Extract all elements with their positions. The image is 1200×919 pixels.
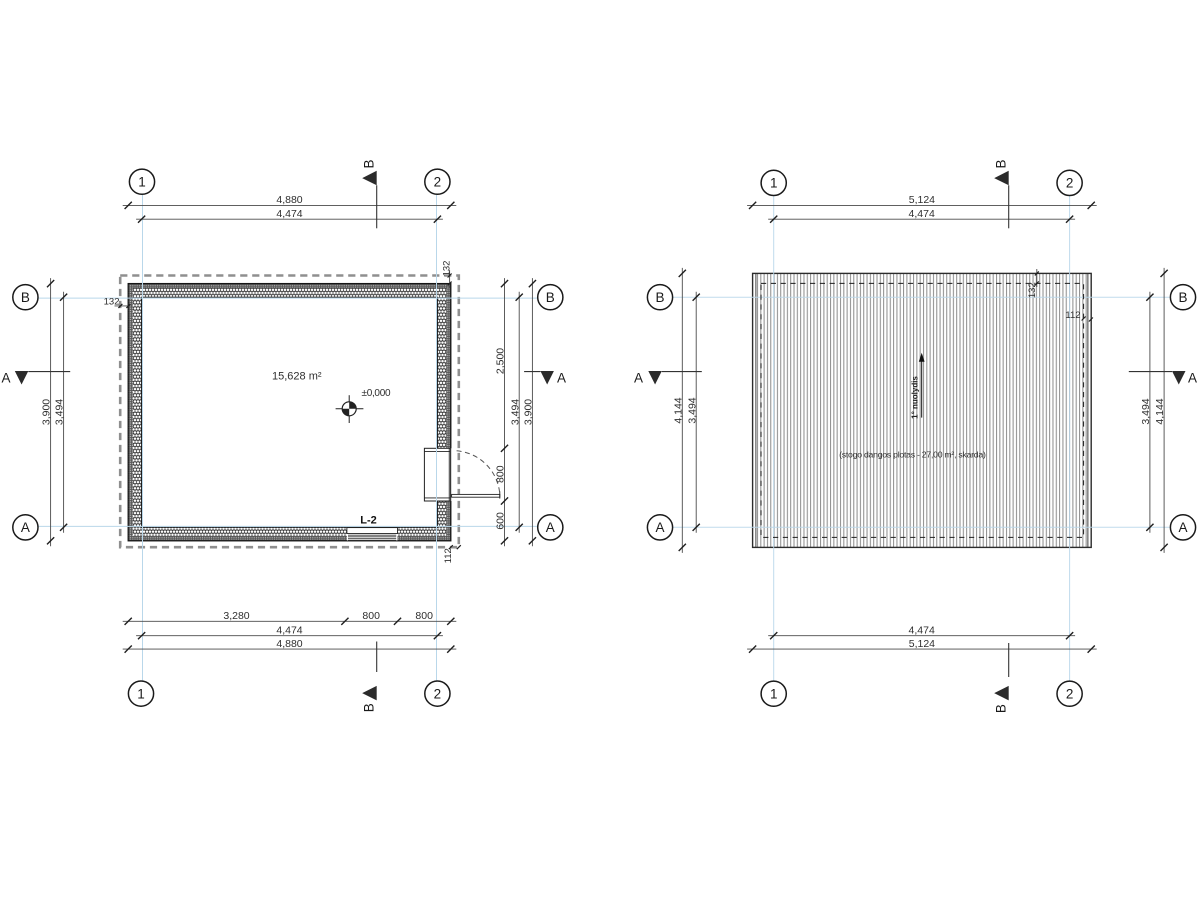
svg-text:4,880: 4,880 xyxy=(276,638,302,650)
svg-text:15,628 m²: 15,628 m² xyxy=(272,371,322,383)
svg-text:1: 1 xyxy=(138,174,146,189)
svg-text:4,474: 4,474 xyxy=(909,625,935,637)
svg-text:600: 600 xyxy=(495,512,507,530)
svg-text:800: 800 xyxy=(362,610,380,622)
svg-text:2: 2 xyxy=(1066,686,1074,701)
svg-text:A: A xyxy=(1,370,10,385)
svg-text:4,144: 4,144 xyxy=(672,397,684,423)
svg-text:A: A xyxy=(634,370,643,385)
svg-text:4,474: 4,474 xyxy=(276,625,302,637)
svg-text:3,494: 3,494 xyxy=(509,399,521,425)
svg-text:2: 2 xyxy=(434,686,442,701)
svg-text:1: 1 xyxy=(770,686,778,701)
svg-text:B: B xyxy=(362,703,377,712)
svg-text:A: A xyxy=(557,370,566,385)
svg-text:B: B xyxy=(1178,290,1187,305)
svg-text:3,280: 3,280 xyxy=(223,610,249,622)
svg-text:5,124: 5,124 xyxy=(909,194,935,206)
svg-text:3,494: 3,494 xyxy=(686,397,698,423)
svg-text:B: B xyxy=(21,290,30,305)
svg-text:1° nuolydis: 1° nuolydis xyxy=(911,376,920,419)
svg-text:132: 132 xyxy=(1027,282,1038,298)
svg-text:B: B xyxy=(362,159,377,168)
svg-text:2: 2 xyxy=(434,174,442,189)
svg-text:800: 800 xyxy=(495,465,507,483)
svg-text:132: 132 xyxy=(104,296,120,307)
svg-text:3,494: 3,494 xyxy=(1140,398,1152,424)
svg-text:5,124: 5,124 xyxy=(909,638,935,650)
svg-text:A: A xyxy=(1188,370,1197,385)
svg-text:4,474: 4,474 xyxy=(276,208,302,220)
svg-text:4,144: 4,144 xyxy=(1154,398,1166,424)
svg-text:4,880: 4,880 xyxy=(276,194,302,206)
svg-text:2,500: 2,500 xyxy=(495,348,507,374)
svg-text:4,474: 4,474 xyxy=(909,208,935,220)
svg-text:A: A xyxy=(655,520,664,535)
svg-text:A: A xyxy=(1178,520,1187,535)
svg-text:1: 1 xyxy=(770,176,778,191)
svg-text:±0,000: ±0,000 xyxy=(362,388,391,399)
svg-text:800: 800 xyxy=(415,610,433,622)
svg-text:3,900: 3,900 xyxy=(41,399,53,425)
svg-text:112: 112 xyxy=(1065,310,1080,321)
svg-text:A: A xyxy=(21,520,30,535)
svg-text:B: B xyxy=(994,704,1009,713)
svg-text:112: 112 xyxy=(443,548,454,563)
svg-text:L-2: L-2 xyxy=(360,514,377,526)
svg-text:2: 2 xyxy=(1066,176,1074,191)
svg-text:B: B xyxy=(994,159,1009,168)
svg-text:A: A xyxy=(546,520,555,535)
svg-text:3,900: 3,900 xyxy=(523,399,535,425)
svg-text:B: B xyxy=(546,290,555,305)
svg-text:1: 1 xyxy=(137,686,145,701)
svg-text:B: B xyxy=(655,290,664,305)
svg-text:3,494: 3,494 xyxy=(54,399,66,425)
svg-text:132: 132 xyxy=(441,261,452,277)
svg-text:(stogo dangos plotas - 27,00 m: (stogo dangos plotas - 27,00 m², skarda) xyxy=(839,450,986,460)
